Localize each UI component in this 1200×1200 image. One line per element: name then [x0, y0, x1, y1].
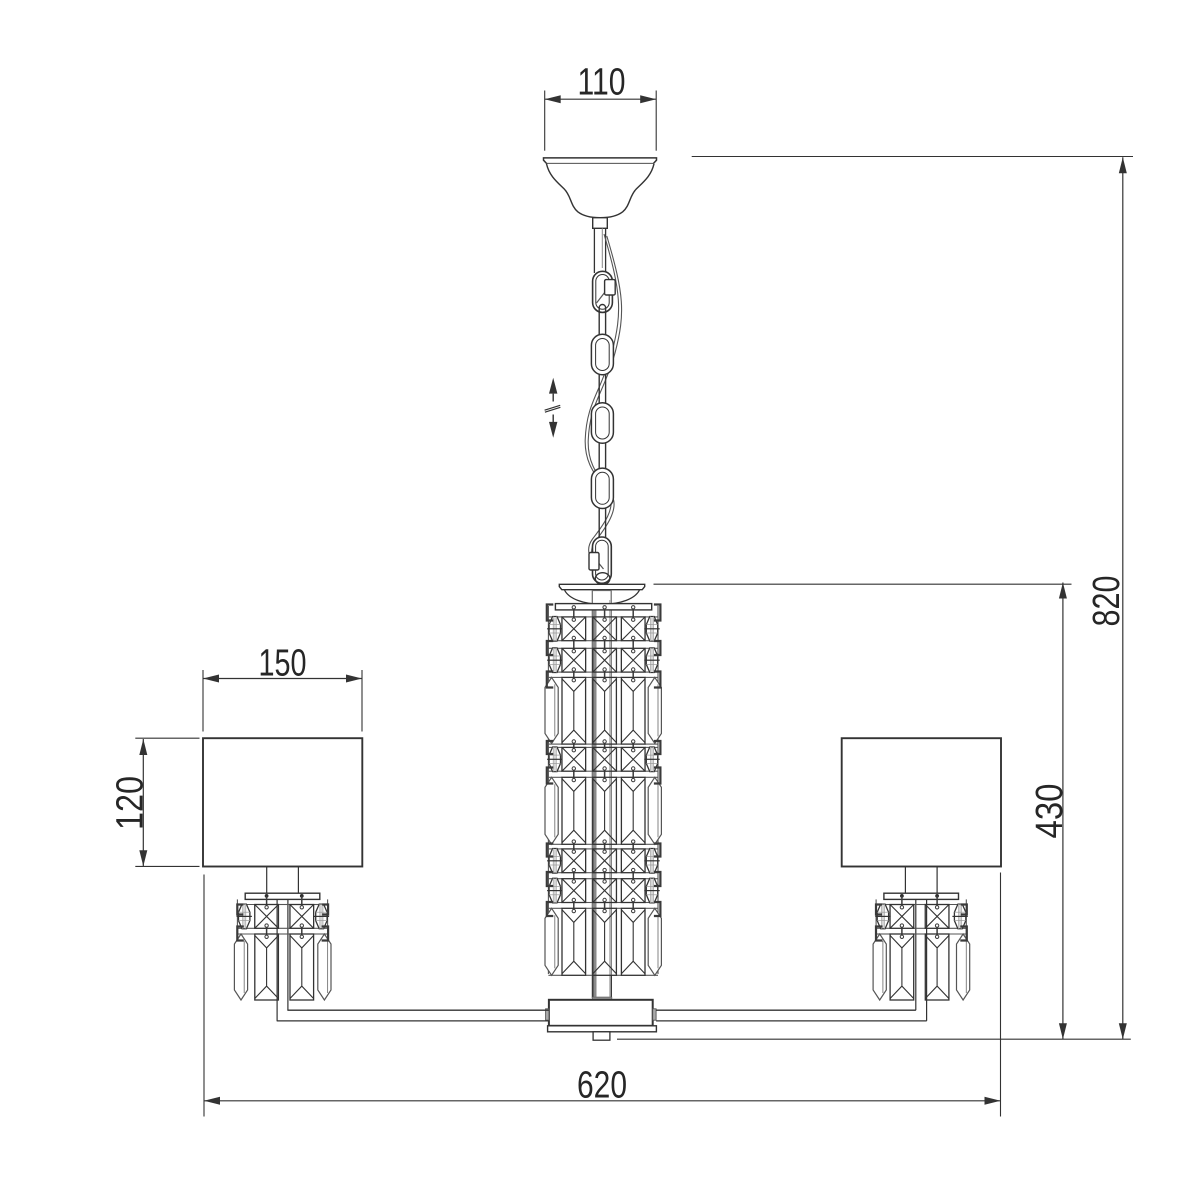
svg-text:430: 430	[1029, 784, 1071, 839]
svg-text:110: 110	[578, 62, 626, 104]
svg-text:120: 120	[110, 776, 152, 830]
svg-text:620: 620	[577, 1065, 627, 1107]
svg-text:820: 820	[1086, 576, 1128, 627]
